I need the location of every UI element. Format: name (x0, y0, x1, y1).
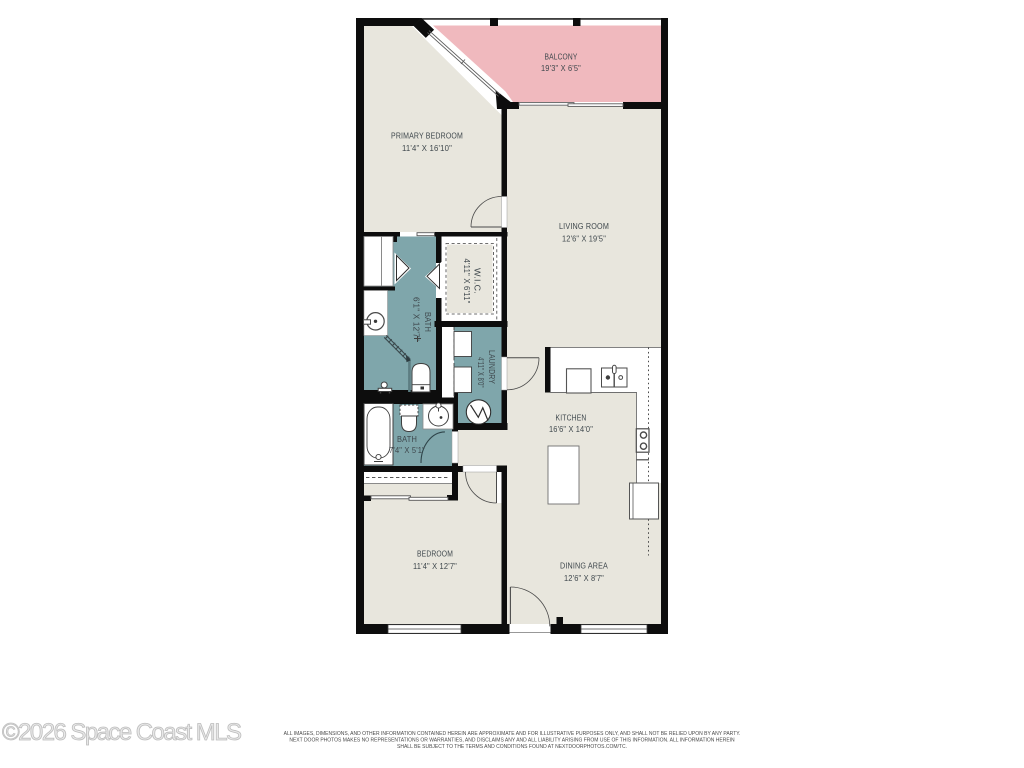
svg-text:6'1" X 12'7": 6'1" X 12'7" (412, 297, 422, 341)
svg-text:SHALL BE SUBJECT TO THE TERMS: SHALL BE SUBJECT TO THE TERMS AND CONDIT… (397, 744, 627, 750)
svg-text:LAUNDRY: LAUNDRY (487, 350, 497, 384)
svg-text:KITCHEN: KITCHEN (556, 413, 587, 423)
svg-text:NEXT DOOR PHOTOS MAKES NO REPR: NEXT DOOR PHOTOS MAKES NO REPRESENTATION… (289, 738, 735, 744)
svg-text:4'11" X 6'11": 4'11" X 6'11" (462, 259, 472, 304)
svg-text:DINING AREA: DINING AREA (560, 561, 608, 571)
svg-text:7'4" X 5'1": 7'4" X 5'1" (389, 445, 425, 455)
svg-text:BATH: BATH (397, 434, 417, 444)
svg-text:11'4" X 12'7": 11'4" X 12'7" (413, 561, 457, 571)
svg-text:LIVING ROOM: LIVING ROOM (559, 221, 609, 231)
svg-text:11'4" X 16'10": 11'4" X 16'10" (402, 143, 452, 153)
svg-text:©2026 Space Coast MLS: ©2026 Space Coast MLS (2, 719, 242, 746)
svg-text:BALCONY: BALCONY (545, 52, 578, 62)
svg-text:16'6" X 14'0": 16'6" X 14'0" (549, 424, 593, 434)
svg-text:ALL IMAGES, DIMENSIONS, AND OT: ALL IMAGES, DIMENSIONS, AND OTHER INFORM… (284, 731, 741, 737)
svg-text:12'6" X 8'7": 12'6" X 8'7" (564, 573, 604, 583)
svg-text:12'6" X 19'5": 12'6" X 19'5" (562, 234, 606, 244)
svg-text:W.I.C.: W.I.C. (473, 268, 483, 294)
svg-text:19'3" X 6'5": 19'3" X 6'5" (541, 63, 581, 73)
svg-text:PRIMARY BEDROOM: PRIMARY BEDROOM (391, 131, 463, 141)
svg-text:BATH: BATH (423, 312, 433, 332)
svg-text:BEDROOM: BEDROOM (417, 549, 453, 559)
svg-text:4'11" X 8'0": 4'11" X 8'0" (476, 357, 486, 388)
